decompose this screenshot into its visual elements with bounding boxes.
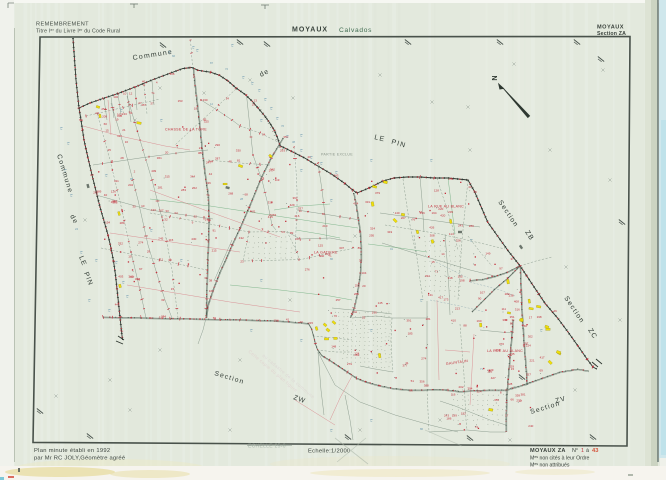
svg-text:68: 68 — [245, 192, 249, 196]
svg-text:257: 257 — [526, 372, 531, 376]
svg-text:20: 20 — [165, 150, 169, 154]
svg-text:38: 38 — [292, 140, 296, 144]
svg-text:16: 16 — [125, 140, 129, 144]
svg-text:189: 189 — [452, 413, 457, 417]
svg-text:88: 88 — [510, 322, 514, 326]
svg-text:40: 40 — [300, 320, 304, 324]
svg-text:MOYAUX: MOYAUX — [597, 25, 624, 31]
svg-text:417: 417 — [438, 296, 443, 300]
svg-text:257: 257 — [336, 298, 341, 302]
svg-text:293: 293 — [280, 148, 285, 152]
svg-text:Mᵉˢ non cités à leur Ordre: Mᵉˢ non cités à leur Ordre — [530, 456, 589, 462]
svg-text:N°: N° — [572, 448, 578, 454]
svg-text:Plan minute établi en 1992: Plan minute établi en 1992 — [34, 448, 110, 454]
svg-text:280: 280 — [469, 224, 474, 228]
svg-text:236: 236 — [117, 114, 122, 118]
svg-text:204: 204 — [128, 183, 133, 187]
svg-text:429: 429 — [290, 203, 295, 207]
svg-text:202: 202 — [459, 385, 464, 389]
svg-text:319: 319 — [387, 230, 392, 234]
svg-text:87: 87 — [210, 61, 214, 65]
svg-text:332: 332 — [118, 242, 123, 246]
svg-text:30: 30 — [204, 276, 208, 280]
svg-text:360: 360 — [135, 277, 140, 281]
svg-text:23: 23 — [240, 259, 244, 263]
svg-text:307: 307 — [339, 246, 344, 250]
svg-text:40: 40 — [468, 185, 472, 189]
svg-text:40: 40 — [104, 193, 108, 197]
svg-text:145: 145 — [378, 301, 383, 305]
svg-text:432: 432 — [239, 236, 244, 240]
svg-text:70: 70 — [334, 314, 338, 318]
svg-text:par Mr RC JOLY,Géomètre agréé: par Mr RC JOLY,Géomètre agréé — [34, 456, 125, 462]
svg-text:416: 416 — [294, 214, 299, 218]
svg-text:379: 379 — [375, 191, 380, 195]
svg-text:21: 21 — [199, 146, 203, 150]
svg-text:302: 302 — [528, 334, 533, 338]
svg-text:243: 243 — [444, 414, 449, 418]
svg-text:273: 273 — [516, 398, 521, 402]
svg-text:39: 39 — [161, 298, 165, 302]
svg-text:252: 252 — [448, 177, 453, 181]
svg-text:40: 40 — [142, 80, 146, 84]
svg-text:Echelle:1/2000: Echelle:1/2000 — [308, 449, 351, 455]
svg-text:23: 23 — [252, 103, 256, 107]
svg-text:281: 281 — [158, 186, 163, 190]
svg-text:90: 90 — [478, 296, 482, 300]
svg-text:169: 169 — [209, 289, 214, 293]
svg-text:221: 221 — [530, 358, 535, 362]
svg-text:245: 245 — [158, 236, 163, 240]
svg-text:10: 10 — [123, 92, 127, 96]
svg-text:330: 330 — [236, 149, 241, 153]
svg-text:388: 388 — [424, 384, 429, 388]
svg-text:69: 69 — [213, 316, 217, 320]
svg-text:28: 28 — [240, 197, 244, 201]
svg-text:71: 71 — [480, 367, 484, 371]
svg-text:CHASSE DE LA TORE: CHASSE DE LA TORE — [165, 128, 207, 132]
svg-text:N: N — [490, 76, 497, 81]
svg-text:255: 255 — [355, 283, 360, 287]
svg-text:54: 54 — [281, 230, 285, 234]
svg-text:316: 316 — [515, 308, 520, 312]
svg-text:403: 403 — [118, 275, 123, 279]
svg-text:282: 282 — [505, 292, 510, 296]
svg-text:32: 32 — [359, 259, 363, 263]
svg-text:66: 66 — [172, 54, 176, 58]
svg-text:201: 201 — [354, 292, 359, 296]
svg-text:107: 107 — [480, 291, 485, 295]
svg-text:268: 268 — [228, 191, 233, 195]
svg-text:290: 290 — [215, 143, 220, 147]
svg-text:197: 197 — [129, 275, 134, 279]
svg-text:104: 104 — [361, 271, 366, 275]
svg-text:410: 410 — [451, 318, 456, 322]
svg-text:340: 340 — [319, 254, 324, 258]
svg-text:38: 38 — [209, 279, 213, 283]
svg-text:276: 276 — [305, 268, 310, 272]
svg-text:370: 370 — [499, 342, 504, 346]
svg-text:436: 436 — [206, 181, 211, 185]
svg-text:21: 21 — [122, 128, 126, 132]
svg-text:183: 183 — [354, 353, 359, 357]
svg-text:265: 265 — [93, 190, 98, 194]
svg-text:25: 25 — [108, 148, 112, 152]
svg-text:274: 274 — [138, 241, 143, 245]
svg-text:117: 117 — [117, 134, 122, 138]
svg-text:12: 12 — [210, 102, 214, 106]
svg-text:ECHELLE 25-0: ECHELLE 25-0 — [248, 444, 286, 450]
svg-text:91: 91 — [213, 228, 217, 232]
svg-text:88: 88 — [463, 324, 467, 328]
svg-text:REMEMBREMENT: REMEMBREMENT — [36, 22, 89, 28]
svg-text:444: 444 — [208, 160, 213, 164]
svg-text:397: 397 — [293, 196, 298, 200]
svg-text:398: 398 — [112, 201, 117, 205]
svg-text:48: 48 — [228, 160, 232, 164]
svg-text:289: 289 — [120, 221, 125, 225]
svg-text:148: 148 — [331, 345, 336, 349]
svg-text:192: 192 — [461, 412, 466, 416]
svg-text:173: 173 — [443, 298, 448, 302]
svg-text:14: 14 — [129, 111, 133, 115]
svg-text:15: 15 — [105, 129, 109, 133]
svg-text:295: 295 — [369, 234, 374, 238]
svg-text:307: 307 — [159, 209, 164, 213]
svg-text:215: 215 — [212, 249, 217, 253]
svg-text:240: 240 — [528, 424, 533, 428]
svg-text:66: 66 — [511, 398, 515, 402]
svg-text:140: 140 — [395, 211, 400, 215]
svg-text:34: 34 — [174, 211, 178, 215]
svg-text:17: 17 — [505, 414, 509, 418]
svg-text:331: 331 — [365, 200, 370, 204]
svg-text:304: 304 — [467, 387, 472, 391]
svg-text:281: 281 — [426, 317, 431, 321]
svg-text:354: 354 — [161, 315, 166, 319]
svg-text:381: 381 — [521, 393, 526, 397]
svg-text:442: 442 — [115, 303, 120, 307]
svg-text:Section ZA: Section ZA — [597, 31, 626, 37]
svg-text:MOYAUX ZA: MOYAUX ZA — [530, 448, 566, 454]
svg-text:338: 338 — [169, 72, 174, 76]
svg-text:97: 97 — [499, 266, 503, 270]
svg-text:30: 30 — [132, 204, 136, 208]
svg-text:LA GATIERE: LA GATIERE — [314, 251, 338, 255]
svg-text:32: 32 — [164, 218, 168, 222]
svg-text:86: 86 — [420, 427, 424, 431]
svg-text:230: 230 — [203, 98, 208, 102]
svg-text:194: 194 — [274, 318, 279, 322]
svg-text:15: 15 — [171, 287, 175, 291]
svg-text:210: 210 — [322, 224, 327, 228]
svg-text:125: 125 — [318, 244, 323, 248]
svg-text:149: 149 — [485, 252, 490, 256]
svg-text:420: 420 — [440, 213, 445, 217]
svg-text:15: 15 — [128, 254, 132, 258]
svg-text:115: 115 — [169, 238, 174, 242]
svg-text:33: 33 — [165, 209, 169, 213]
svg-text:209: 209 — [102, 115, 107, 119]
svg-text:311: 311 — [114, 179, 119, 183]
svg-text:301: 301 — [352, 310, 357, 314]
svg-text:198: 198 — [537, 315, 542, 319]
svg-text:51: 51 — [411, 379, 415, 383]
svg-text:17: 17 — [529, 315, 533, 319]
svg-text:28: 28 — [120, 156, 124, 160]
svg-text:318: 318 — [448, 276, 453, 280]
svg-text:274: 274 — [421, 356, 426, 360]
svg-text:12: 12 — [129, 91, 133, 95]
svg-text:277: 277 — [269, 169, 274, 173]
svg-text:279: 279 — [347, 362, 352, 366]
svg-text:324: 324 — [477, 389, 482, 393]
svg-text:37: 37 — [511, 257, 515, 261]
svg-text:196: 196 — [372, 311, 377, 315]
svg-text:424: 424 — [353, 202, 358, 206]
svg-text:81: 81 — [252, 209, 256, 213]
svg-text:41: 41 — [286, 318, 290, 322]
svg-text:67: 67 — [139, 267, 143, 271]
svg-text:415: 415 — [268, 215, 273, 219]
svg-text:254: 254 — [101, 107, 106, 111]
svg-text:367: 367 — [141, 103, 146, 107]
svg-text:337: 337 — [298, 207, 303, 211]
svg-text:315: 315 — [165, 174, 170, 178]
svg-text:111: 111 — [502, 307, 507, 311]
svg-text:18: 18 — [194, 107, 198, 111]
svg-text:126: 126 — [111, 189, 116, 193]
svg-text:324: 324 — [370, 226, 375, 230]
svg-text:MOYAUX: MOYAUX — [292, 27, 328, 34]
svg-text:409: 409 — [151, 169, 156, 173]
svg-text:91: 91 — [390, 247, 394, 251]
svg-text:185: 185 — [408, 331, 413, 335]
svg-text:Titre Iᵉʳ du Livre Iᵉʳ du Cod: Titre Iᵉʳ du Livre Iᵉʳ du Code Rural — [36, 29, 120, 35]
svg-text:267: 267 — [401, 216, 406, 220]
svg-text:155: 155 — [458, 275, 463, 279]
svg-text:194: 194 — [432, 211, 437, 215]
svg-text:149: 149 — [205, 218, 210, 222]
svg-text:287: 287 — [215, 156, 220, 160]
svg-text:28: 28 — [295, 237, 299, 241]
svg-text:86: 86 — [409, 389, 413, 393]
svg-text:114: 114 — [449, 232, 454, 236]
svg-text:433: 433 — [151, 208, 156, 212]
svg-text:14: 14 — [441, 252, 445, 256]
svg-text:332: 332 — [425, 274, 430, 278]
svg-text:Mᵉˢ non attribués: Mᵉˢ non attribués — [530, 463, 570, 469]
svg-text:34: 34 — [262, 132, 266, 136]
svg-text:LA RUE AU BLANC: LA RUE AU BLANC — [487, 349, 523, 353]
svg-text:72: 72 — [225, 67, 229, 71]
svg-text:1: 1 — [581, 448, 584, 454]
svg-text:416: 416 — [420, 211, 425, 215]
svg-text:43: 43 — [592, 448, 599, 454]
svg-text:283: 283 — [181, 188, 186, 192]
svg-text:427: 427 — [491, 376, 496, 380]
svg-text:391: 391 — [406, 318, 411, 322]
svg-text:86: 86 — [330, 257, 334, 261]
svg-text:190: 190 — [477, 319, 482, 323]
svg-text:71: 71 — [435, 270, 439, 274]
svg-text:111: 111 — [159, 258, 164, 262]
svg-text:42: 42 — [209, 172, 213, 176]
svg-text:344: 344 — [190, 174, 195, 178]
svg-text:243: 243 — [122, 112, 127, 116]
svg-text:89: 89 — [290, 231, 294, 235]
svg-text:65: 65 — [322, 212, 326, 216]
svg-text:36: 36 — [474, 190, 478, 194]
svg-text:153: 153 — [178, 99, 183, 103]
svg-text:29: 29 — [147, 250, 151, 254]
svg-text:81: 81 — [237, 159, 241, 163]
svg-text:329: 329 — [509, 364, 514, 368]
svg-text:356: 356 — [420, 380, 425, 384]
svg-text:LA RUE AU BLANC: LA RUE AU BLANC — [428, 205, 464, 209]
svg-text:73: 73 — [475, 425, 479, 429]
svg-text:198: 198 — [460, 279, 465, 283]
svg-text:328: 328 — [507, 382, 512, 386]
svg-text:417: 417 — [540, 356, 545, 360]
svg-text:10: 10 — [141, 204, 145, 208]
svg-text:215: 215 — [308, 321, 313, 325]
svg-text:430: 430 — [191, 237, 196, 241]
svg-text:89: 89 — [358, 246, 362, 250]
svg-text:60: 60 — [104, 122, 108, 126]
svg-text:390: 390 — [502, 318, 507, 322]
svg-text:89: 89 — [130, 177, 134, 181]
svg-text:154: 154 — [105, 221, 110, 225]
svg-text:20: 20 — [362, 284, 366, 288]
svg-text:à: à — [586, 448, 589, 454]
svg-text:213: 213 — [455, 307, 460, 311]
svg-text:343: 343 — [333, 174, 338, 178]
svg-text:19: 19 — [115, 117, 119, 121]
svg-text:243: 243 — [458, 224, 463, 228]
svg-text:116: 116 — [451, 392, 456, 396]
svg-text:69: 69 — [540, 368, 544, 372]
svg-text:82: 82 — [194, 215, 198, 219]
svg-text:326: 326 — [456, 238, 461, 242]
svg-text:132: 132 — [113, 95, 118, 99]
svg-text:351: 351 — [510, 315, 515, 319]
svg-text:128: 128 — [434, 189, 439, 193]
svg-text:239: 239 — [448, 210, 453, 214]
svg-text:24: 24 — [75, 227, 79, 231]
svg-text:PARTIE EXCLUE: PARTIE EXCLUE — [321, 153, 353, 157]
svg-text:76: 76 — [412, 217, 416, 221]
svg-text:Calvados: Calvados — [339, 27, 372, 34]
svg-text:262: 262 — [192, 186, 197, 190]
svg-text:361: 361 — [157, 156, 162, 160]
svg-text:119: 119 — [275, 178, 280, 182]
svg-text:46: 46 — [554, 309, 558, 313]
svg-text:408: 408 — [514, 300, 519, 304]
svg-text:34: 34 — [226, 97, 230, 101]
svg-text:37: 37 — [150, 101, 154, 105]
svg-text:388: 388 — [198, 151, 203, 155]
svg-text:25: 25 — [362, 315, 366, 319]
svg-text:308: 308 — [430, 234, 435, 238]
svg-text:76: 76 — [281, 124, 285, 128]
svg-text:426: 426 — [429, 226, 434, 230]
svg-text:325: 325 — [204, 120, 209, 124]
